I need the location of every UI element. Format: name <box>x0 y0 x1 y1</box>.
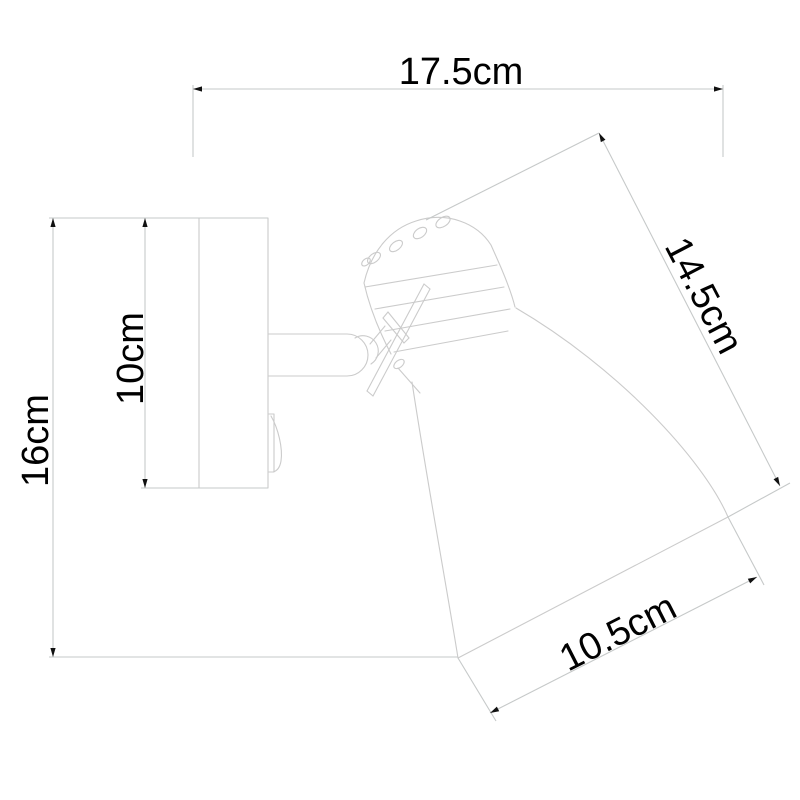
lamp-head <box>364 217 515 354</box>
dim-label-head-length: 14.5cm <box>656 231 751 361</box>
vent-holes <box>360 214 452 371</box>
ext-shade-right <box>728 517 764 585</box>
ext-shade-left <box>458 658 496 721</box>
lamp-dimension-diagram: 17.5cm 16cm 10cm 14.5cm 10.5cm <box>0 0 800 800</box>
arrowhead <box>714 86 723 91</box>
lamp-shade <box>412 308 728 658</box>
dim-label-shade-diameter: 10.5cm <box>553 586 683 680</box>
dim-label-overall-height: 16cm <box>15 394 57 487</box>
wall-backplate <box>199 218 268 488</box>
ball-joint <box>355 312 409 364</box>
arrowhead <box>193 86 202 91</box>
arrowhead <box>748 575 758 584</box>
arrowhead <box>50 648 55 657</box>
ext-head-top <box>426 133 599 220</box>
ext-head-bottom <box>728 483 790 517</box>
diagram-canvas: 17.5cm 16cm 10cm 14.5cm 10.5cm <box>0 0 800 800</box>
power-switch <box>268 414 281 472</box>
artwork-lamp <box>199 214 728 658</box>
arrowhead <box>142 479 147 488</box>
dimension-labels: 17.5cm 16cm 10cm 14.5cm 10.5cm <box>15 51 751 680</box>
dim-label-backplate-height: 10cm <box>110 312 152 405</box>
dim-label-overall-width: 17.5cm <box>399 51 524 93</box>
mounting-arm <box>268 334 368 376</box>
arrowhead <box>50 218 55 227</box>
arrowhead <box>774 477 783 487</box>
arrowhead <box>142 218 147 227</box>
